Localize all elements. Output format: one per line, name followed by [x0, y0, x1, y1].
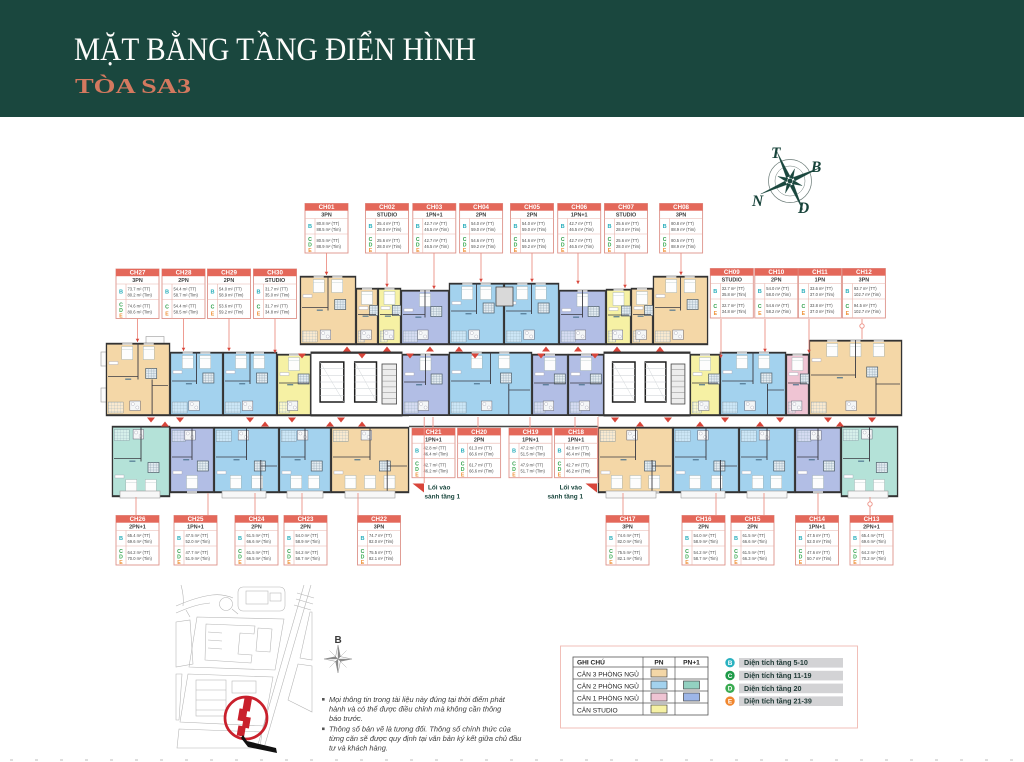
svg-text:58.7 m² (Tim): 58.7 m² (Tim) [296, 556, 321, 561]
svg-text:CH07: CH07 [618, 204, 634, 211]
svg-text:B: B [801, 289, 805, 295]
svg-text:66.6 m² (Tim): 66.6 m² (Tim) [469, 452, 494, 457]
svg-text:102.7 m² (Tim): 102.7 m² (Tim) [854, 309, 881, 314]
svg-text:2PN+1: 2PN+1 [129, 525, 146, 531]
svg-text:báo trước.: báo trước. [329, 714, 363, 723]
svg-text:54.0 m² (TT): 54.0 m² (TT) [694, 533, 717, 538]
svg-text:B: B [607, 224, 611, 230]
svg-text:46.2 m² (Tim): 46.2 m² (Tim) [566, 469, 591, 474]
svg-text:STUDIO: STUDIO [265, 278, 285, 284]
svg-text:88.9 m² (Tim): 88.9 m² (Tim) [317, 244, 342, 249]
svg-text:54.6 m² (TT): 54.6 m² (TT) [766, 303, 789, 308]
svg-text:69.6 m² (Tim): 69.6 m² (Tim) [128, 539, 153, 544]
svg-text:51.7 m² (Tim): 51.7 m² (Tim) [521, 469, 546, 474]
svg-text:51.9 m² (Tim): 51.9 m² (Tim) [186, 556, 211, 561]
svg-text:CH08: CH08 [673, 204, 689, 211]
svg-text:Diện tích tầng 20: Diện tích tầng 20 [744, 684, 802, 693]
svg-text:93.7 m² (TT): 93.7 m² (TT) [854, 286, 877, 291]
svg-text:B: B [512, 449, 516, 455]
svg-text:65.4 m² (TT): 65.4 m² (TT) [128, 533, 151, 538]
svg-text:sảnh tầng 1: sảnh tầng 1 [425, 492, 461, 501]
svg-text:46.4 m² (Tim): 46.4 m² (Tim) [566, 452, 591, 457]
svg-text:E: E [461, 473, 465, 479]
svg-text:35.8 m² (Tim): 35.8 m² (Tim) [722, 292, 747, 297]
svg-text:66.6 m² (Tim): 66.6 m² (Tim) [743, 539, 768, 544]
svg-text:54.4 m² (TT): 54.4 m² (TT) [174, 287, 197, 292]
svg-text:58.0 m² (Tim): 58.0 m² (Tim) [766, 292, 791, 297]
svg-text:CH12: CH12 [856, 269, 872, 276]
svg-text:E: E [685, 560, 689, 566]
svg-text:2PN: 2PN [474, 437, 485, 443]
svg-text:46.5 m² (Tim): 46.5 m² (Tim) [569, 227, 594, 232]
svg-text:75.5 m² (TT): 75.5 m² (TT) [618, 550, 641, 555]
svg-text:1PN+1: 1PN+1 [568, 437, 585, 443]
svg-text:58.7 m² (Tim): 58.7 m² (Tim) [174, 293, 199, 298]
svg-text:E: E [609, 560, 613, 566]
svg-text:1PN+1: 1PN+1 [522, 437, 539, 443]
svg-text:B: B [416, 224, 420, 230]
svg-text:E: E [287, 560, 291, 566]
svg-text:C: C [165, 305, 169, 311]
svg-text:B: B [758, 289, 762, 295]
svg-text:tư và khách hàng.: tư và khách hàng. [329, 744, 388, 753]
svg-text:E: E [238, 560, 242, 566]
svg-text:34.8 m² (Tim): 34.8 m² (Tim) [722, 309, 747, 314]
svg-text:CĂN 3 PHÒNG NGỦ: CĂN 3 PHÒNG NGỦ [577, 670, 639, 679]
svg-text:50.7 m² (Tim): 50.7 m² (Tim) [807, 556, 832, 561]
svg-text:Diện tích tầng 11-19: Diện tích tầng 11-19 [744, 671, 812, 680]
svg-text:STUDIO: STUDIO [616, 213, 636, 219]
svg-text:CH26: CH26 [130, 516, 146, 523]
svg-text:42.8 m² (TT): 42.8 m² (TT) [566, 446, 589, 451]
svg-text:37.0 m² (Tim): 37.0 m² (Tim) [810, 292, 835, 297]
svg-text:STUDIO: STUDIO [377, 213, 397, 219]
svg-text:B: B [415, 449, 419, 455]
svg-text:B: B [360, 536, 364, 542]
svg-text:32.7 m² (TT): 32.7 m² (TT) [722, 303, 745, 308]
svg-text:74.7 m² (TT): 74.7 m² (TT) [369, 533, 392, 538]
svg-text:CH13: CH13 [864, 516, 880, 523]
svg-text:từng căn sẽ được quy định tại: từng căn sẽ được quy định tại văn bản ký… [329, 734, 521, 743]
svg-text:46.4 m² (Tim): 46.4 m² (Tim) [424, 452, 449, 457]
svg-text:2PN: 2PN [224, 278, 235, 284]
svg-text:80.2 m² (Tim): 80.2 m² (Tim) [128, 293, 153, 298]
svg-text:E: E [846, 311, 850, 317]
svg-text:sảnh tầng 1: sảnh tầng 1 [547, 492, 583, 501]
svg-text:C: C [846, 304, 850, 310]
svg-text:CH11: CH11 [812, 269, 828, 276]
svg-text:E: E [463, 248, 467, 254]
svg-text:Mọi thông tin trong tài liệu n: Mọi thông tin trong tài liệu này đúng tạ… [329, 695, 506, 704]
svg-text:54.6 m² (TT): 54.6 m² (TT) [471, 238, 494, 243]
svg-text:47.6 m² (TT): 47.6 m² (TT) [807, 550, 830, 555]
svg-text:58.7 m² (Tim): 58.7 m² (Tim) [694, 556, 719, 561]
svg-text:B: B [810, 159, 821, 176]
svg-text:B: B [853, 536, 857, 542]
svg-text:B: B [513, 224, 517, 230]
svg-text:74.6 m² (TT): 74.6 m² (TT) [618, 533, 641, 538]
svg-text:37.0 m² (Tim): 37.0 m² (Tim) [810, 309, 835, 314]
svg-text:CH30: CH30 [267, 270, 283, 277]
svg-text:B: B [368, 224, 372, 230]
svg-text:54.2 m² (TT): 54.2 m² (TT) [296, 550, 319, 555]
svg-text:B: B [210, 290, 214, 296]
svg-text:B: B [177, 536, 181, 542]
svg-text:MẶT BẰNG TẦNG ĐIỂN HÌNH: MẶT BẰNG TẦNG ĐIỂN HÌNH [74, 30, 476, 68]
svg-text:59.2 m² (Tim): 59.2 m² (Tim) [219, 310, 244, 315]
svg-text:2PN: 2PN [251, 525, 262, 531]
svg-text:2PN: 2PN [747, 525, 758, 531]
svg-text:58.9 m² (Tim): 58.9 m² (Tim) [296, 539, 321, 544]
svg-text:1PN+1: 1PN+1 [426, 213, 443, 219]
svg-text:2PN: 2PN [698, 525, 709, 531]
svg-text:E: E [514, 248, 518, 254]
svg-text:E: E [853, 560, 857, 566]
svg-text:CH15: CH15 [745, 516, 761, 523]
svg-text:59.0 m² (Tim): 59.0 m² (Tim) [522, 227, 547, 232]
svg-text:73.7 m² (TT): 73.7 m² (TT) [128, 287, 151, 292]
svg-text:CH04: CH04 [473, 204, 489, 211]
svg-text:25.4 m² (TT): 25.4 m² (TT) [377, 221, 400, 226]
svg-text:51.5 m² (Tim): 51.5 m² (Tim) [521, 452, 546, 457]
svg-text:54.0 m² (TT): 54.0 m² (TT) [296, 533, 319, 538]
svg-text:47.9 m² (TT): 47.9 m² (TT) [521, 463, 544, 468]
svg-text:B: B [845, 289, 849, 295]
svg-text:E: E [211, 312, 215, 318]
svg-text:52.0 m² (Tim): 52.0 m² (Tim) [186, 539, 211, 544]
svg-text:B: B [238, 536, 242, 542]
svg-text:CH23: CH23 [298, 516, 314, 523]
svg-text:D: D [797, 200, 809, 217]
svg-text:69.6 m² (Tim): 69.6 m² (Tim) [862, 539, 887, 544]
svg-text:82.0 m² (Tim): 82.0 m² (Tim) [618, 539, 643, 544]
svg-text:CH20: CH20 [471, 429, 487, 436]
svg-text:Diện tích tầng 21-39: Diện tích tầng 21-39 [744, 697, 812, 706]
svg-text:61.5 m² (TT): 61.5 m² (TT) [743, 550, 766, 555]
svg-text:1PN: 1PN [815, 278, 826, 284]
svg-text:58.9 m² (Tim): 58.9 m² (Tim) [219, 293, 244, 298]
svg-text:CĂN 1 PHÒNG NGỦ: CĂN 1 PHÒNG NGỦ [577, 694, 639, 703]
svg-text:88.5 m² (Tim): 88.5 m² (Tim) [317, 227, 342, 232]
svg-text:B: B [561, 224, 565, 230]
svg-text:CH16: CH16 [696, 516, 712, 523]
svg-text:59.0 m² (Tim): 59.0 m² (Tim) [471, 227, 496, 232]
svg-text:2PN+1: 2PN+1 [863, 525, 880, 531]
svg-text:88.9 m² (Tim): 88.9 m² (Tim) [671, 244, 696, 249]
svg-text:42.7 m² (TT): 42.7 m² (TT) [566, 463, 589, 468]
svg-text:B: B [287, 536, 291, 542]
svg-text:E: E [558, 473, 562, 479]
svg-text:3PN: 3PN [676, 213, 687, 219]
svg-text:B: B [734, 536, 738, 542]
svg-text:CH25: CH25 [188, 516, 204, 523]
svg-text:47.5 m² (TT): 47.5 m² (TT) [807, 533, 830, 538]
svg-text:3PN: 3PN [321, 213, 332, 219]
svg-text:54.0 m² (TT): 54.0 m² (TT) [471, 221, 494, 226]
svg-text:1PN+1: 1PN+1 [809, 525, 826, 531]
svg-text:82.0 m² (Tim): 82.0 m² (Tim) [369, 539, 394, 544]
svg-text:E: E [177, 560, 181, 566]
svg-text:CH22: CH22 [371, 516, 387, 523]
svg-text:1PN+1: 1PN+1 [187, 525, 204, 531]
svg-text:B: B [256, 290, 260, 296]
svg-text:47.7 m² (TT): 47.7 m² (TT) [186, 550, 209, 555]
svg-text:88.9 m² (Tim): 88.9 m² (Tim) [671, 227, 696, 232]
svg-text:B: B [557, 449, 561, 455]
svg-text:3PN: 3PN [859, 278, 870, 284]
svg-text:2PN: 2PN [300, 525, 311, 531]
svg-text:2PN: 2PN [771, 278, 782, 284]
svg-text:C: C [802, 304, 806, 310]
svg-text:54.0 m² (TT): 54.0 m² (TT) [766, 286, 789, 291]
svg-text:47.5 m² (TT): 47.5 m² (TT) [186, 533, 209, 538]
svg-text:82.1 m² (Tim): 82.1 m² (Tim) [369, 556, 394, 561]
svg-text:E: E [802, 311, 806, 317]
svg-text:59.2 m² (Tim): 59.2 m² (Tim) [522, 244, 547, 249]
svg-text:61.5 m² (TT): 61.5 m² (TT) [247, 550, 270, 555]
svg-text:CH09: CH09 [724, 269, 740, 276]
svg-text:75.5 m² (TT): 75.5 m² (TT) [369, 550, 392, 555]
svg-text:58.2 m² (Tim): 58.2 m² (Tim) [766, 309, 791, 314]
svg-text:B: B [308, 224, 312, 230]
svg-text:CH05: CH05 [524, 204, 540, 211]
svg-text:Thông số bản vẽ là tương đối.: Thông số bản vẽ là tương đối. Thông số c… [329, 725, 511, 734]
svg-text:GHI CHÚ: GHI CHÚ [577, 658, 605, 667]
svg-text:E: E [119, 314, 123, 320]
svg-text:1PN+1: 1PN+1 [571, 213, 588, 219]
svg-text:61.3 m² (TT): 61.3 m² (TT) [469, 446, 492, 451]
svg-text:28.0 m² (Tim): 28.0 m² (Tim) [616, 227, 641, 232]
svg-text:61.5 m² (TT): 61.5 m² (TT) [247, 533, 270, 538]
svg-text:CĂN 2 PHÒNG NGỦ: CĂN 2 PHÒNG NGỦ [577, 682, 639, 691]
svg-text:34.8 m² (Tim): 34.8 m² (Tim) [265, 310, 290, 315]
svg-text:TÒA SA3: TÒA SA3 [75, 74, 191, 98]
svg-text:58.5 m² (Tim): 58.5 m² (Tim) [174, 310, 199, 315]
svg-text:46.5 m² (Tim): 46.5 m² (Tim) [569, 244, 594, 249]
svg-text:66.3 m² (Tim): 66.3 m² (Tim) [743, 556, 768, 561]
svg-text:B: B [119, 536, 123, 542]
svg-text:54.0 m² (TT): 54.0 m² (TT) [522, 221, 545, 226]
svg-text:59.2 m² (Tim): 59.2 m² (Tim) [471, 244, 496, 249]
svg-text:80.6 m² (Tim): 80.6 m² (Tim) [128, 310, 153, 315]
svg-text:58.9 m² (Tim): 58.9 m² (Tim) [694, 539, 719, 544]
svg-text:B: B [335, 635, 342, 646]
svg-text:82.1 m² (Tim): 82.1 m² (Tim) [618, 556, 643, 561]
svg-text:E: E [257, 312, 261, 318]
svg-text:B: B [461, 449, 465, 455]
svg-text:64.2 m² (TT): 64.2 m² (TT) [862, 550, 885, 555]
svg-text:PN+1: PN+1 [683, 660, 700, 667]
svg-text:52.0 m² (Tim): 52.0 m² (Tim) [807, 539, 832, 544]
svg-text:B: B [165, 290, 169, 296]
svg-text:E: E [714, 311, 718, 317]
svg-text:B: B [463, 224, 467, 230]
svg-text:E: E [663, 248, 667, 254]
svg-text:D: D [728, 686, 733, 693]
svg-text:70.2 m² (Tim): 70.2 m² (Tim) [862, 556, 887, 561]
svg-text:C: C [257, 305, 261, 311]
svg-text:46.5 m² (Tim): 46.5 m² (Tim) [424, 244, 449, 249]
svg-text:E: E [512, 473, 516, 479]
svg-text:E: E [361, 560, 365, 566]
svg-text:33.6 m² (TT): 33.6 m² (TT) [810, 286, 833, 291]
svg-text:2PN: 2PN [476, 213, 487, 219]
svg-text:61.5 m² (TT): 61.5 m² (TT) [743, 533, 766, 538]
svg-text:CH28: CH28 [176, 270, 192, 277]
svg-text:64.2 m² (TT): 64.2 m² (TT) [128, 550, 151, 555]
svg-text:31.7 m² (TT): 31.7 m² (TT) [265, 287, 288, 292]
svg-text:E: E [734, 560, 738, 566]
svg-text:Lối vào: Lối vào [428, 484, 450, 492]
svg-text:B: B [119, 290, 123, 296]
svg-text:25.6 m² (TT): 25.6 m² (TT) [377, 238, 400, 243]
svg-text:31.7 m² (TT): 31.7 m² (TT) [265, 304, 288, 309]
svg-text:3PN: 3PN [132, 278, 143, 284]
svg-text:CH01: CH01 [319, 204, 335, 211]
svg-text:54.6 m² (TT): 54.6 m² (TT) [522, 238, 545, 243]
svg-text:66.6 m² (Tim): 66.6 m² (Tim) [469, 469, 494, 474]
svg-text:42.7 m² (TT): 42.7 m² (TT) [569, 221, 592, 226]
svg-text:C: C [728, 673, 733, 680]
svg-text:66.5 m² (Tim): 66.5 m² (Tim) [247, 556, 272, 561]
svg-text:54.4 m² (TT): 54.4 m² (TT) [174, 304, 197, 309]
svg-text:42.8 m² (TT): 42.8 m² (TT) [424, 446, 447, 451]
svg-text:94.5 m² (TT): 94.5 m² (TT) [854, 303, 877, 308]
svg-text:CH29: CH29 [221, 270, 237, 277]
svg-text:B: B [728, 660, 733, 667]
svg-text:E: E [369, 248, 373, 254]
svg-text:CH10: CH10 [768, 269, 784, 276]
svg-text:46.2 m² (Tim): 46.2 m² (Tim) [424, 469, 449, 474]
svg-text:1PN+1: 1PN+1 [425, 437, 442, 443]
svg-text:32.7 m² (TT): 32.7 m² (TT) [722, 286, 745, 291]
svg-text:CH06: CH06 [571, 204, 587, 211]
svg-text:C: C [211, 305, 215, 311]
svg-text:Diện tích tầng 5-10: Diện tích tầng 5-10 [744, 658, 808, 667]
svg-text:42.7 m² (TT): 42.7 m² (TT) [424, 221, 447, 226]
svg-text:53.6 m² (TT): 53.6 m² (TT) [219, 304, 242, 309]
svg-text:CH03: CH03 [426, 204, 442, 211]
svg-text:B: B [798, 536, 802, 542]
svg-text:3PN: 3PN [622, 525, 633, 531]
svg-text:80.5 m² (TT): 80.5 m² (TT) [671, 238, 694, 243]
svg-text:28.0 m² (Tim): 28.0 m² (Tim) [616, 244, 641, 249]
svg-text:CH02: CH02 [379, 204, 395, 211]
svg-text:80.8 m² (TT): 80.8 m² (TT) [671, 221, 694, 226]
svg-text:E: E [119, 560, 123, 566]
svg-text:E: E [416, 248, 420, 254]
svg-text:Lối vào: Lối vào [560, 484, 582, 492]
svg-text:E: E [308, 248, 312, 254]
svg-text:28.0 m² (Tim): 28.0 m² (Tim) [377, 227, 402, 232]
svg-text:E: E [561, 248, 565, 254]
svg-text:T: T [771, 145, 781, 162]
svg-text:42.7 m² (TT): 42.7 m² (TT) [424, 238, 447, 243]
svg-text:B: B [609, 536, 613, 542]
svg-text:54.0 m² (TT): 54.0 m² (TT) [219, 287, 242, 292]
svg-text:3PN: 3PN [374, 525, 385, 531]
svg-text:65.4 m² (TT): 65.4 m² (TT) [862, 533, 885, 538]
svg-text:PN: PN [654, 660, 663, 667]
svg-text:54.2 m² (TT): 54.2 m² (TT) [694, 550, 717, 555]
svg-text:66.6 m² (Tim): 66.6 m² (Tim) [247, 539, 272, 544]
svg-text:E: E [415, 473, 419, 479]
svg-text:CH19: CH19 [523, 429, 539, 436]
svg-text:E: E [758, 311, 762, 317]
svg-text:25.6 m² (TT): 25.6 m² (TT) [616, 238, 639, 243]
svg-text:C: C [758, 304, 762, 310]
svg-text:CH27: CH27 [130, 270, 146, 277]
svg-text:70.0 m² (Tim): 70.0 m² (Tim) [128, 556, 153, 561]
svg-text:N: N [751, 193, 764, 210]
svg-text:74.6 m² (TT): 74.6 m² (TT) [128, 304, 151, 309]
svg-text:42.7 m² (TT): 42.7 m² (TT) [424, 463, 447, 468]
svg-text:CH17: CH17 [620, 516, 636, 523]
svg-text:28.0 m² (Tim): 28.0 m² (Tim) [377, 244, 402, 249]
svg-text:CH21: CH21 [426, 429, 442, 436]
svg-text:hành và có thể được điều chỉnh: hành và có thể được điều chỉnh mà không … [329, 705, 502, 714]
svg-text:33.8 m² (TT): 33.8 m² (TT) [810, 303, 833, 308]
svg-text:35.0 m² (Tim): 35.0 m² (Tim) [265, 293, 290, 298]
svg-text:E: E [728, 698, 733, 705]
svg-text:CH14: CH14 [809, 516, 825, 523]
svg-text:47.2 m² (TT): 47.2 m² (TT) [521, 446, 544, 451]
svg-text:B: B [663, 224, 667, 230]
svg-text:CĂN STUDIO: CĂN STUDIO [577, 706, 618, 715]
svg-text:25.6 m² (TT): 25.6 m² (TT) [616, 221, 639, 226]
svg-text:2PN: 2PN [178, 278, 189, 284]
svg-text:C: C [713, 304, 717, 310]
svg-text:STUDIO: STUDIO [722, 278, 742, 284]
svg-text:B: B [685, 536, 689, 542]
svg-text:46.5 m² (Tim): 46.5 m² (Tim) [424, 227, 449, 232]
svg-text:42.7 m² (TT): 42.7 m² (TT) [569, 238, 592, 243]
svg-text:B: B [713, 289, 717, 295]
svg-text:CH18: CH18 [568, 429, 584, 436]
svg-text:E: E [165, 312, 169, 318]
svg-text:80.8 m² (TT): 80.8 m² (TT) [317, 221, 340, 226]
svg-text:2PN: 2PN [527, 213, 538, 219]
svg-text:61.7 m² (TT): 61.7 m² (TT) [469, 463, 492, 468]
svg-text:102.7 m² (Tim): 102.7 m² (Tim) [854, 292, 881, 297]
svg-text:80.5 m² (TT): 80.5 m² (TT) [317, 238, 340, 243]
svg-text:CH24: CH24 [249, 516, 265, 523]
svg-text:E: E [608, 248, 612, 254]
svg-text:E: E [799, 560, 803, 566]
